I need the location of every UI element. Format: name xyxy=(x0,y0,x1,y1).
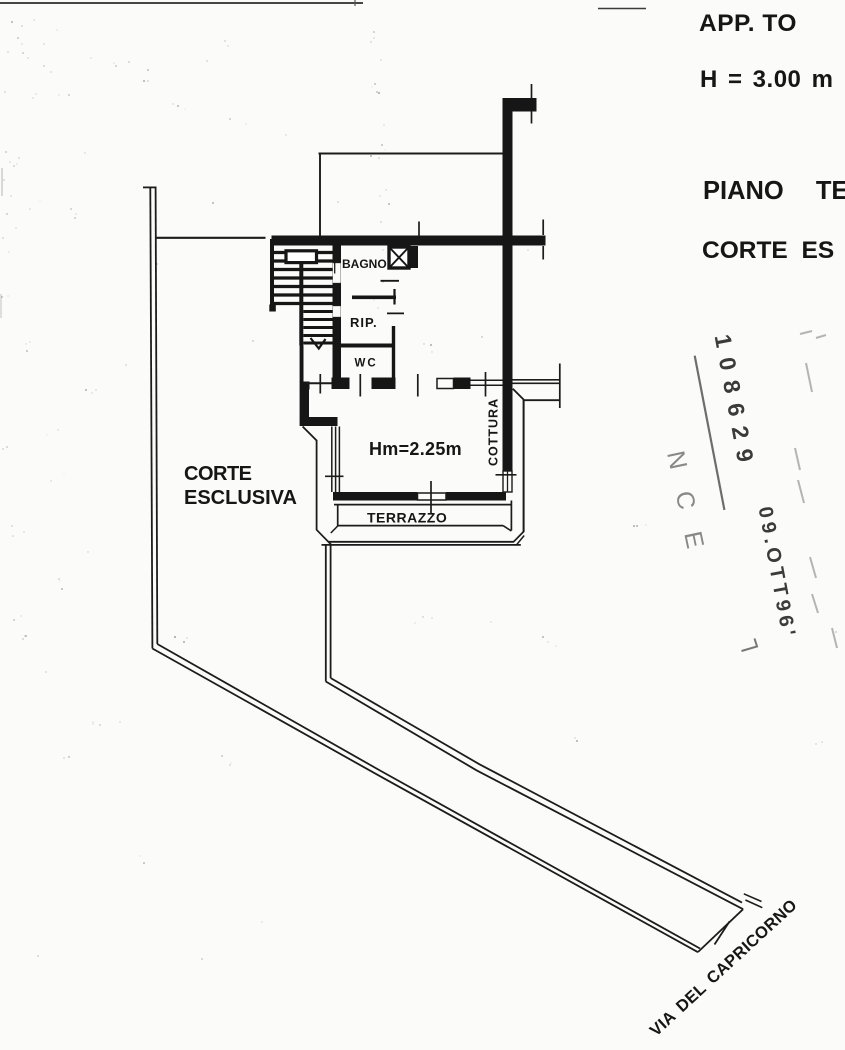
svg-text:RIP.: RIP. xyxy=(350,315,378,330)
svg-text:Hm=2.25m: Hm=2.25m xyxy=(369,439,462,459)
svg-text:VIA DEL CAPRICORNO: VIA DEL CAPRICORNO xyxy=(647,896,801,1040)
svg-text:BAGNO: BAGNO xyxy=(342,257,387,271)
svg-text:CORTE ES: CORTE ES xyxy=(702,237,834,264)
svg-text:NCE: NCE xyxy=(661,448,714,573)
svg-text:APP. TO: APP. TO xyxy=(699,10,797,37)
svg-text:COTTURA: COTTURA xyxy=(487,398,501,466)
svg-text:09.OTT96': 09.OTT96' xyxy=(754,505,800,642)
svg-text:WC: WC xyxy=(355,358,378,370)
svg-text:TERRAZZO: TERRAZZO xyxy=(367,510,447,526)
svg-text:108629: 108629 xyxy=(710,332,761,474)
svg-text:PIANO TE: PIANO TE xyxy=(703,177,845,205)
svg-text:CORTE: CORTE xyxy=(184,463,252,485)
svg-text:ESCLUSIVA: ESCLUSIVA xyxy=(184,487,297,509)
svg-text:H = 3.00 m: H = 3.00 m xyxy=(700,66,833,93)
